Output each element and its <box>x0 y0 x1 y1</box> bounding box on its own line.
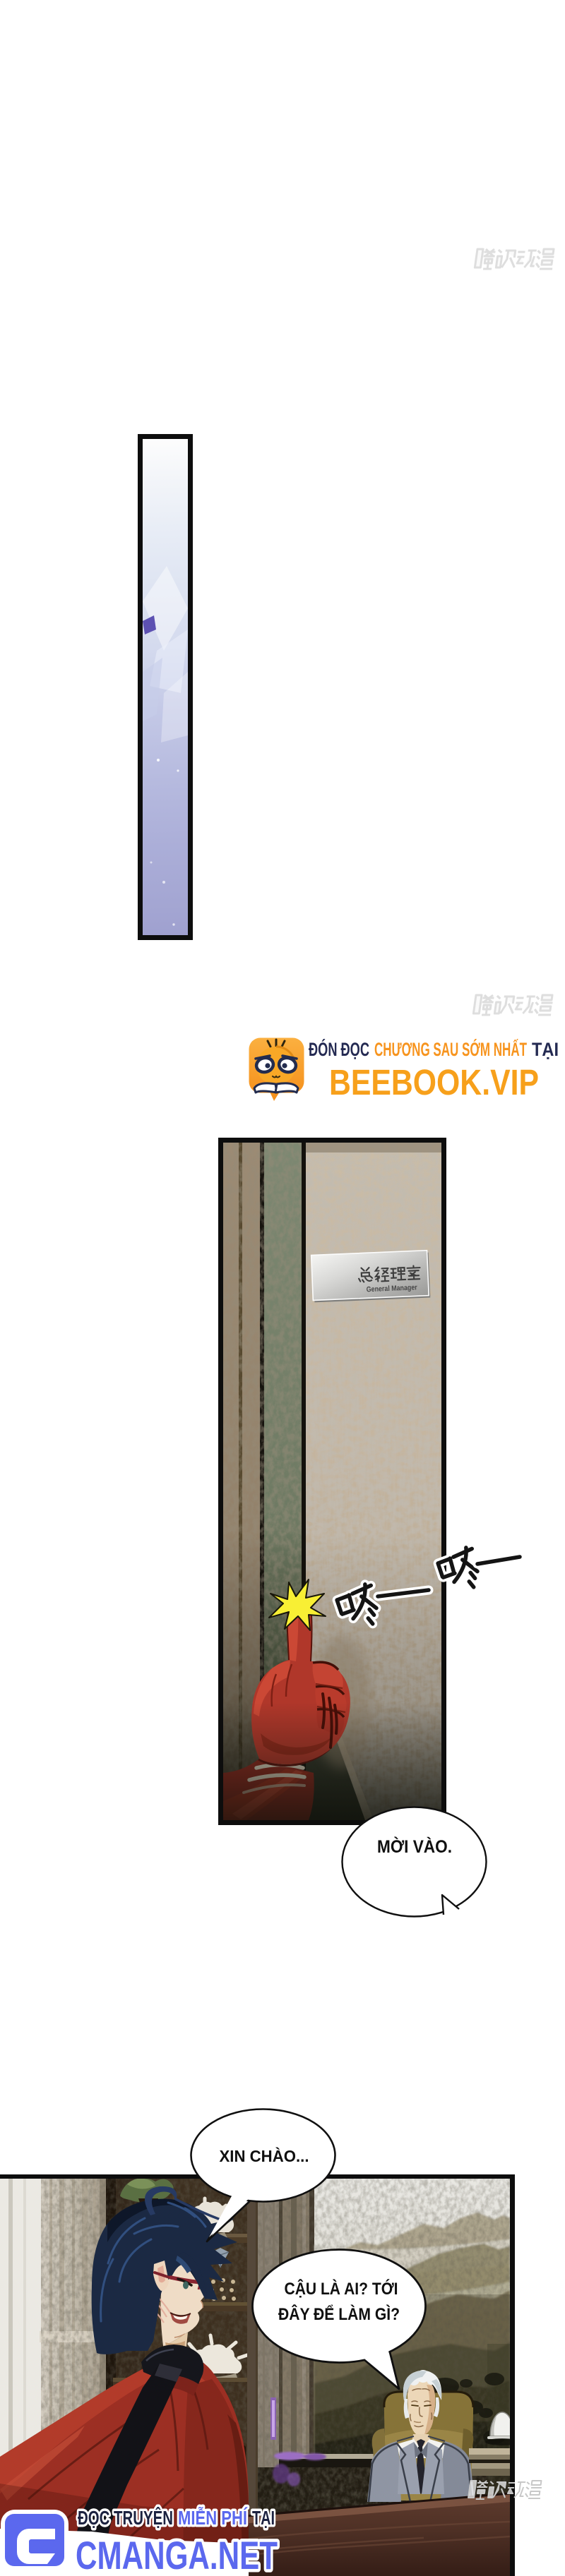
svg-text:ĐÂY ĐỂ LÀM GÌ?: ĐÂY ĐỂ LÀM GÌ? <box>278 2304 400 2324</box>
svg-text:TẠI: TẠI <box>532 1039 559 1060</box>
svg-text:MIỄN PHÍ: MIỄN PHÍ <box>178 2507 248 2529</box>
svg-text:CMANGA.NET: CMANGA.NET <box>76 2533 278 2576</box>
svg-text:CHƯƠNG SAU SỚM NHẤT: CHƯƠNG SAU SỚM NHẤT <box>374 1038 527 1060</box>
svg-text:ĐỌC TRUYỆN: ĐỌC TRUYỆN <box>78 2507 173 2529</box>
svg-text:ĐÓN ĐỌC: ĐÓN ĐỌC <box>309 1038 369 1060</box>
svg-text:TẠI: TẠI <box>252 2507 275 2529</box>
svg-text:XIN CHÀO...: XIN CHÀO... <box>220 2146 309 2165</box>
svg-text:BEEBOOK.VIP: BEEBOOK.VIP <box>329 1062 539 1102</box>
svg-text:CẬU LÀ AI? TỚI: CẬU LÀ AI? TỚI <box>285 2279 398 2299</box>
svg-text:MỜI VÀO.: MỜI VÀO. <box>377 1836 452 1857</box>
